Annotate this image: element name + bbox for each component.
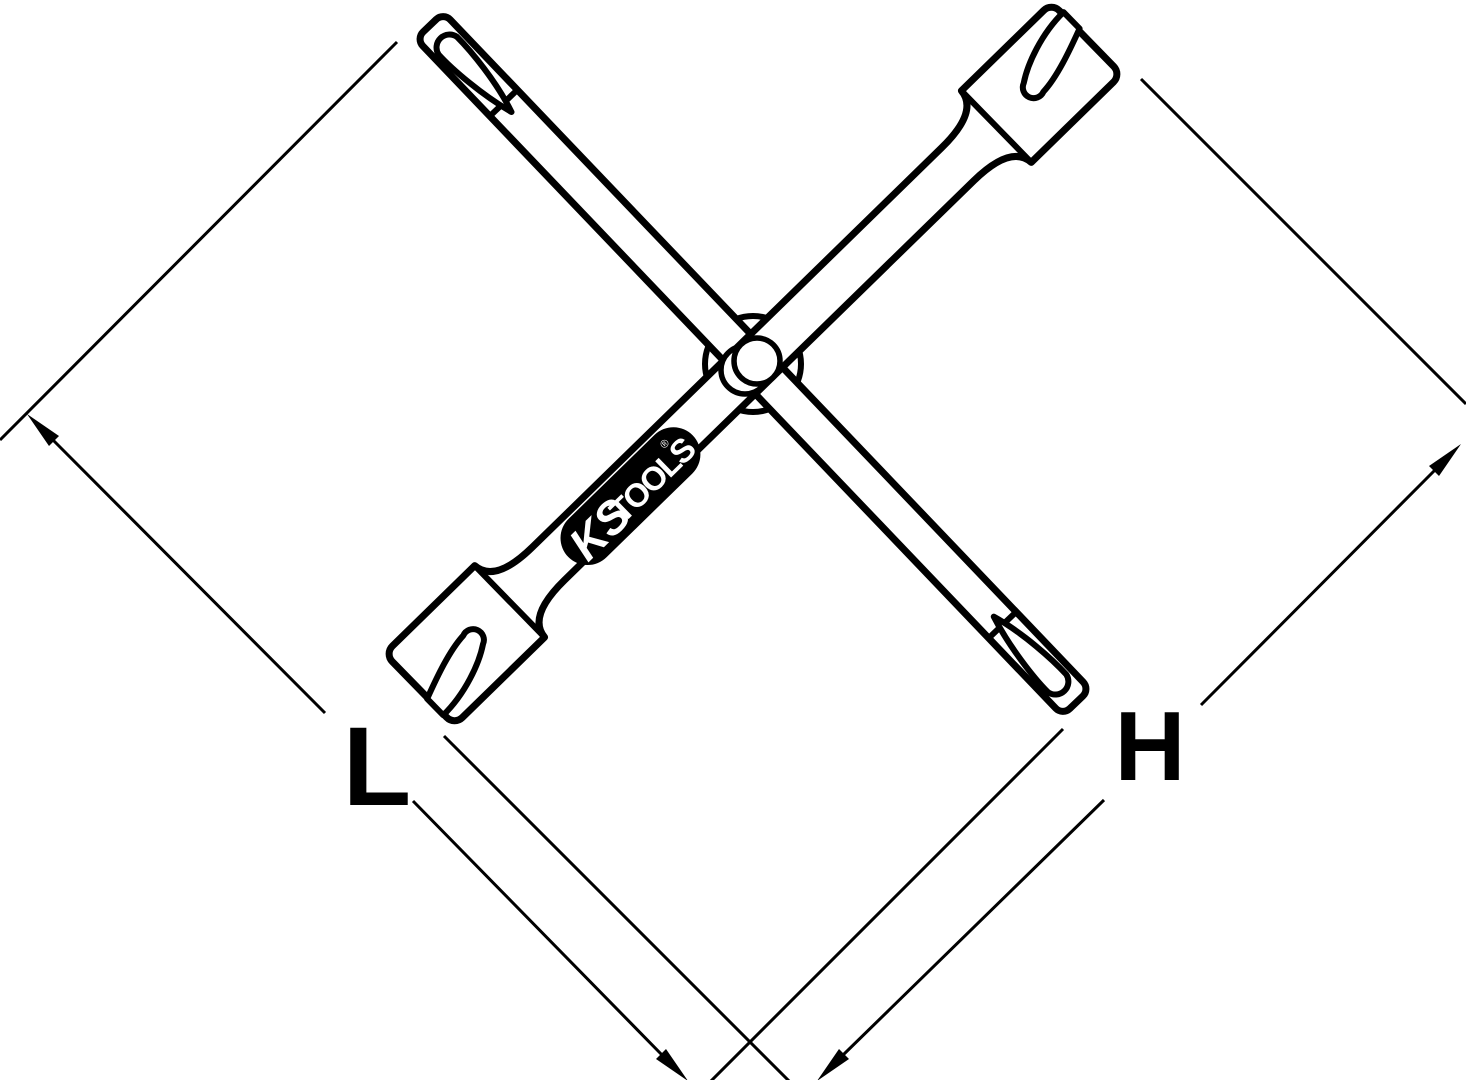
dimension-h-line-upper	[1201, 468, 1437, 705]
dimension-l-line-upper	[50, 437, 325, 713]
product-drawing-page: L H KS TOOLS ®	[0, 0, 1466, 1080]
extension-line-bottom-right	[700, 729, 1063, 1080]
ks-tools-logo: KS TOOLS ®	[549, 416, 712, 577]
dimension-arrows	[27, 414, 1461, 1080]
dimension-layer	[0, 42, 1466, 1080]
dimension-h-line-lower	[842, 800, 1104, 1056]
dimension-l-label: L	[343, 704, 411, 829]
pivot-hole	[734, 338, 780, 384]
extension-line-top-right	[1141, 79, 1466, 404]
dimension-h-label: H	[1115, 691, 1186, 801]
dimension-l-line-lower	[413, 801, 664, 1057]
extension-line-bottom-left	[444, 736, 797, 1080]
extension-line-top-left	[0, 42, 397, 440]
cross-wrench-technical-drawing: L H KS TOOLS ®	[0, 0, 1466, 1080]
